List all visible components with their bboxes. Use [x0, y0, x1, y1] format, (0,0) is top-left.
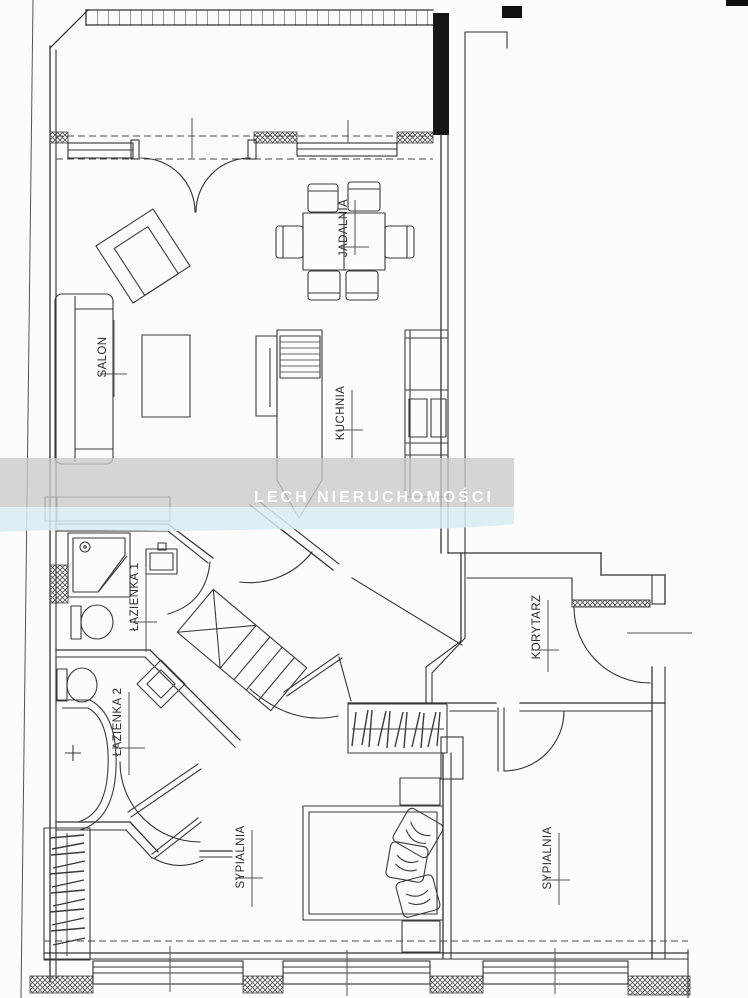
wall-corridor-left	[426, 553, 465, 703]
toilet	[57, 668, 97, 702]
svg-text:SYPIALNIA: SYPIALNIA	[235, 825, 247, 888]
room-label-kuchnia: KUCHNIA	[335, 386, 363, 460]
room-label-jadalnia: JADALNIA	[338, 199, 369, 257]
window-top-1	[68, 143, 133, 158]
dining-chair	[308, 184, 338, 212]
wall-top	[50, 132, 433, 159]
bedroom2-door	[498, 708, 564, 771]
wall-corridor-top	[448, 553, 665, 604]
watermark-text: LECH NIERUCHOMOŚCI	[254, 487, 494, 506]
bathroom2-door	[120, 762, 201, 842]
svg-text:SALON: SALON	[97, 337, 109, 378]
stairwell-walls	[465, 32, 507, 638]
room-label-salon: SALON	[97, 320, 127, 397]
svg-text:ŁAZIENKA 1: ŁAZIENKA 1	[129, 563, 141, 632]
wardrobe-hangers	[44, 828, 90, 960]
wall-bathroom-divider	[56, 650, 240, 747]
room-label-sypialnia2: SYPIALNIA	[542, 826, 570, 905]
hall-bedroom1-door	[250, 654, 351, 718]
wall-bottom	[30, 941, 690, 995]
coffee-table	[142, 335, 190, 417]
svg-text:ŁAZIENKA 2: ŁAZIENKA 2	[112, 688, 124, 757]
black-mark-top	[502, 6, 522, 18]
svg-text:JADALNIA: JADALNIA	[338, 199, 350, 257]
bed	[303, 806, 443, 920]
svg-text:KUCHNIA: KUCHNIA	[335, 386, 347, 441]
room-label-sypialnia1: SYPIALNIA	[235, 825, 263, 907]
dining-chair	[385, 226, 414, 258]
kitchen-sink	[280, 336, 320, 378]
room-label-korytarz: KORYTARZ	[531, 595, 559, 672]
balcony-railing	[86, 10, 433, 25]
shower	[68, 533, 130, 597]
dining-chair	[348, 182, 380, 211]
room-label-lazienka1: ŁAZIENKA 1	[129, 563, 157, 652]
wall-top-left-diagonal	[50, 10, 88, 48]
balcony-french-door	[131, 118, 256, 212]
armchair	[96, 209, 190, 303]
wall-between-bedrooms	[441, 737, 463, 958]
wall-right-exterior	[652, 667, 688, 998]
window-bottom-2	[283, 950, 430, 996]
nightstand	[400, 778, 440, 805]
room-label-lazienka2: ŁAZIENKA 2	[112, 688, 145, 775]
window-top-2	[297, 120, 397, 156]
wall-hatched-bar	[433, 13, 449, 135]
sofa	[55, 294, 113, 464]
nightstand	[402, 921, 440, 952]
bathtub	[57, 700, 116, 830]
dining-chair	[276, 226, 303, 258]
hall-door	[240, 552, 312, 583]
toilet	[71, 605, 113, 639]
dining-chair	[346, 271, 378, 300]
washbasin	[137, 660, 185, 708]
black-mark-corner	[726, 0, 748, 6]
wardrobe-hangers	[348, 704, 447, 753]
pillow	[395, 874, 441, 919]
window-bottom-3	[483, 948, 628, 994]
dining-chair	[308, 271, 340, 300]
floor-plan-drawing: SALON JADALNIA KUCHNIA ŁAZIENKA 1 ŁAZIEN…	[0, 0, 748, 998]
washbasin	[146, 543, 177, 574]
entrance-door	[572, 600, 692, 683]
watermark-band: LECH NIERUCHOMOŚCI	[0, 458, 514, 532]
wardrobe	[177, 589, 306, 710]
floor-plan-page: SALON JADALNIA KUCHNIA ŁAZIENKA 1 ŁAZIEN…	[0, 0, 748, 998]
